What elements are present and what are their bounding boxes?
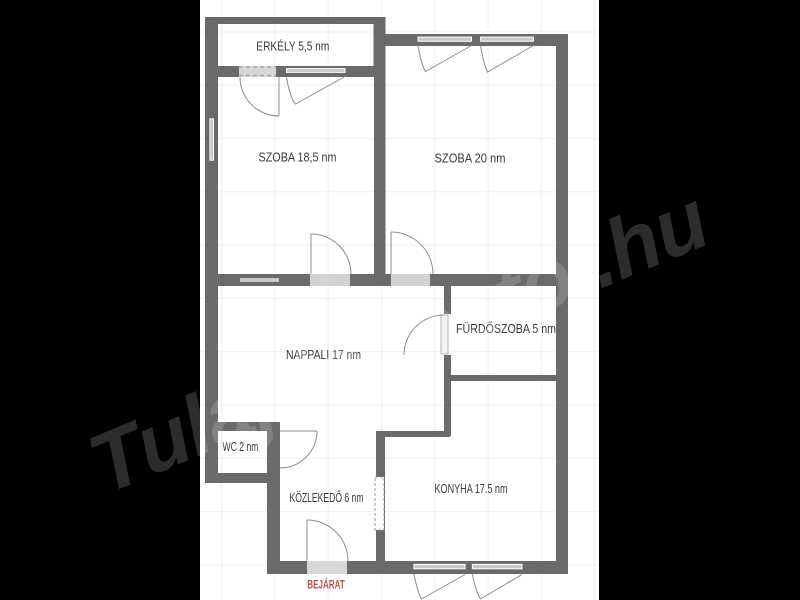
svg-text:SZOBA 18,5 nm: SZOBA 18,5 nm <box>259 151 337 165</box>
svg-text:KÖZLEKEDŐ 6 nm: KÖZLEKEDŐ 6 nm <box>290 490 364 505</box>
svg-text:BEJÁRAT: BEJÁRAT <box>307 579 345 592</box>
svg-text:SZOBA 20 nm: SZOBA 20 nm <box>435 152 506 166</box>
svg-text:KONYHA 17.5 nm: KONYHA 17.5 nm <box>435 482 508 496</box>
svg-text:ERKÉLY 5,5 nm: ERKÉLY 5,5 nm <box>256 38 329 53</box>
